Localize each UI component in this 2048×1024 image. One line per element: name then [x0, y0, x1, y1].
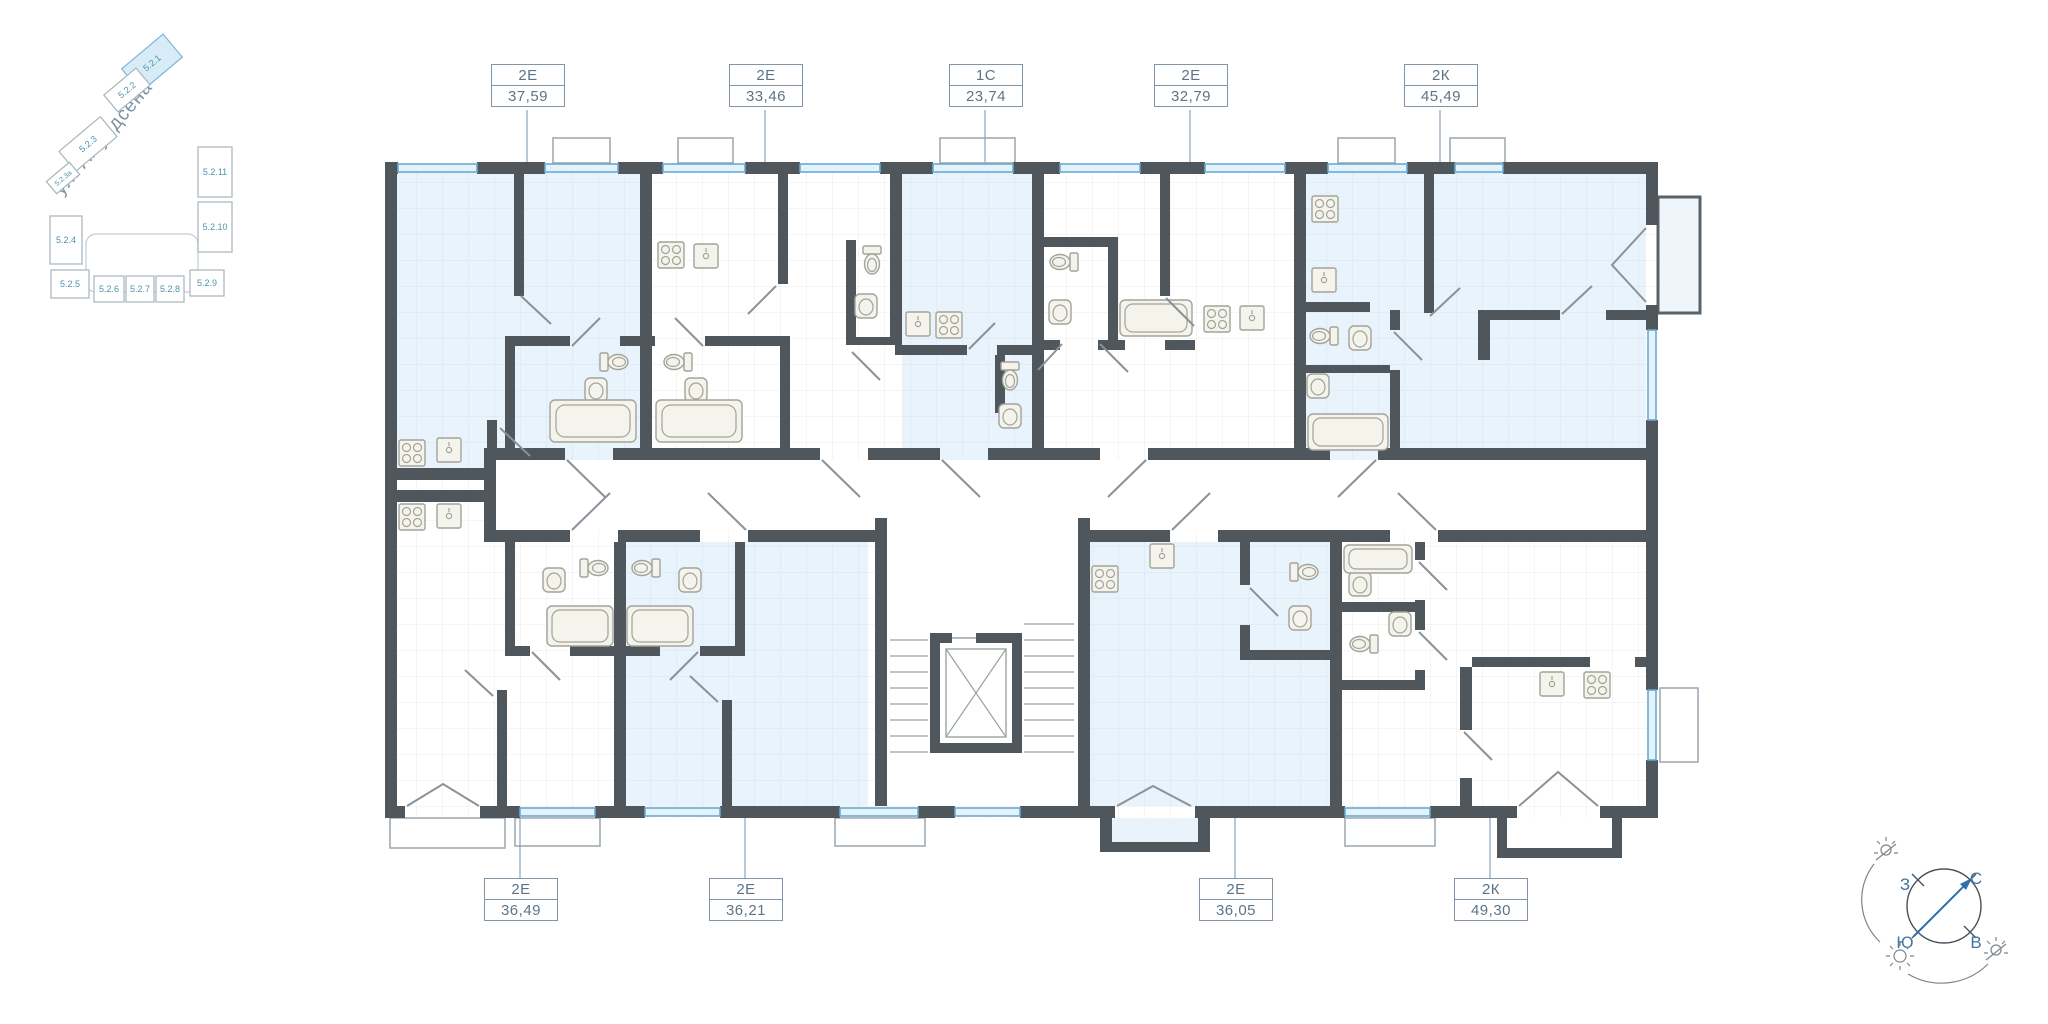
apartment-label-top-4[interactable]: 2Е 32,79 — [1154, 64, 1228, 107]
compass-west-label: З — [1900, 875, 1910, 894]
minimap-block-5.2.5[interactable]: 5.2.5 — [51, 270, 89, 298]
apartment-area-value: 23,74 — [950, 86, 1022, 106]
apartment-label-bottom-4[interactable]: 2К 49,30 — [1454, 878, 1528, 921]
svg-text:5.2.5: 5.2.5 — [60, 279, 80, 289]
svg-text:5.2.9: 5.2.9 — [197, 278, 217, 288]
apartment-label-bottom-2[interactable]: 2Е 36,21 — [709, 878, 783, 921]
svg-text:5.2.7: 5.2.7 — [130, 284, 150, 294]
floorplan-canvas: ул. Амундсена 5.2.1 5.2.2 5.2.3 5.2.3а 5… — [0, 0, 2048, 1024]
apartment-label-top-3[interactable]: 1С 23,74 — [949, 64, 1023, 107]
apartment-type: 2Е — [1155, 65, 1227, 86]
compass-south-label: Ю — [1896, 933, 1913, 952]
apartment-area-value: 36,49 — [485, 900, 557, 920]
top-balconies — [553, 138, 1505, 163]
apartment-type: 2Е — [710, 879, 782, 900]
bottom-balconies — [390, 818, 1435, 848]
loggia-area — [1112, 818, 1198, 844]
minimap-block-5.2.7[interactable]: 5.2.7 — [126, 276, 154, 302]
minimap-block-5.2.4[interactable]: 5.2.4 — [50, 216, 82, 264]
compass: З С Ю В — [1862, 837, 2008, 983]
svg-text:5.2.11: 5.2.11 — [203, 167, 227, 177]
apartment-area-value: 36,21 — [710, 900, 782, 920]
svg-text:5.2.10: 5.2.10 — [202, 222, 227, 232]
minimap-block-5.2.9[interactable]: 5.2.9 — [190, 270, 224, 296]
floorplan-page: ул. Амундсена 5.2.1 5.2.2 5.2.3 5.2.3а 5… — [0, 0, 2048, 1024]
sun-arc-west — [1862, 864, 1880, 942]
apartment-type: 1С — [950, 65, 1022, 86]
svg-text:5.2.4: 5.2.4 — [56, 235, 76, 245]
minimap: ул. Амундсена 5.2.1 5.2.2 5.2.3 5.2.3а 5… — [46, 34, 232, 302]
apartment-area-value: 32,79 — [1155, 86, 1227, 106]
apartment-area-2k-4930[interactable] — [1342, 542, 1646, 806]
sun-arc-south — [1908, 964, 1988, 983]
apartment-type: 2Е — [1200, 879, 1272, 900]
compass-north-label: С — [1970, 869, 1982, 888]
apartment-label-top-2[interactable]: 2Е 33,46 — [729, 64, 803, 107]
apartment-label-top-1[interactable]: 2Е 37,59 — [491, 64, 565, 107]
apartment-type: 2Е — [730, 65, 802, 86]
corridor — [490, 460, 1646, 530]
sunset-icon — [1984, 937, 2008, 960]
apartment-area-2e-3621[interactable] — [626, 542, 868, 806]
apartment-area-2e-3649[interactable] — [397, 502, 614, 806]
minimap-block-5.2.10[interactable]: 5.2.10 — [198, 202, 232, 252]
compass-east-label: В — [1970, 933, 1981, 952]
minimap-block-5.2.8[interactable]: 5.2.8 — [156, 276, 184, 302]
apartment-area-value: 49,30 — [1455, 900, 1527, 920]
minimap-block-5.2.11[interactable]: 5.2.11 — [198, 147, 232, 197]
apartment-type: 2Е — [485, 879, 557, 900]
sunrise-icon — [1874, 837, 1898, 860]
apartment-label-bottom-1[interactable]: 2Е 36,49 — [484, 878, 558, 921]
apartment-area-value: 36,05 — [1200, 900, 1272, 920]
apartment-area-value: 37,59 — [492, 86, 564, 106]
svg-text:5.2.8: 5.2.8 — [160, 284, 180, 294]
apartment-type: 2К — [1455, 879, 1527, 900]
apartment-area-value: 45,49 — [1405, 86, 1477, 106]
apartment-area-2e-3346[interactable] — [652, 174, 890, 448]
apartment-type: 2К — [1405, 65, 1477, 86]
apartment-type: 2Е — [492, 65, 564, 86]
apartment-area-value: 33,46 — [730, 86, 802, 106]
apartment-label-bottom-3[interactable]: 2Е 36,05 — [1199, 878, 1273, 921]
minimap-block-5.2.6[interactable]: 5.2.6 — [94, 276, 124, 302]
apartment-area-2e-3279[interactable] — [1044, 174, 1294, 448]
apartment-label-top-5[interactable]: 2К 45,49 — [1404, 64, 1478, 107]
right-small-balcony — [1660, 688, 1698, 762]
svg-text:5.2.6: 5.2.6 — [99, 284, 119, 294]
main-floorplan — [385, 110, 1700, 878]
right-balcony — [1658, 197, 1700, 313]
